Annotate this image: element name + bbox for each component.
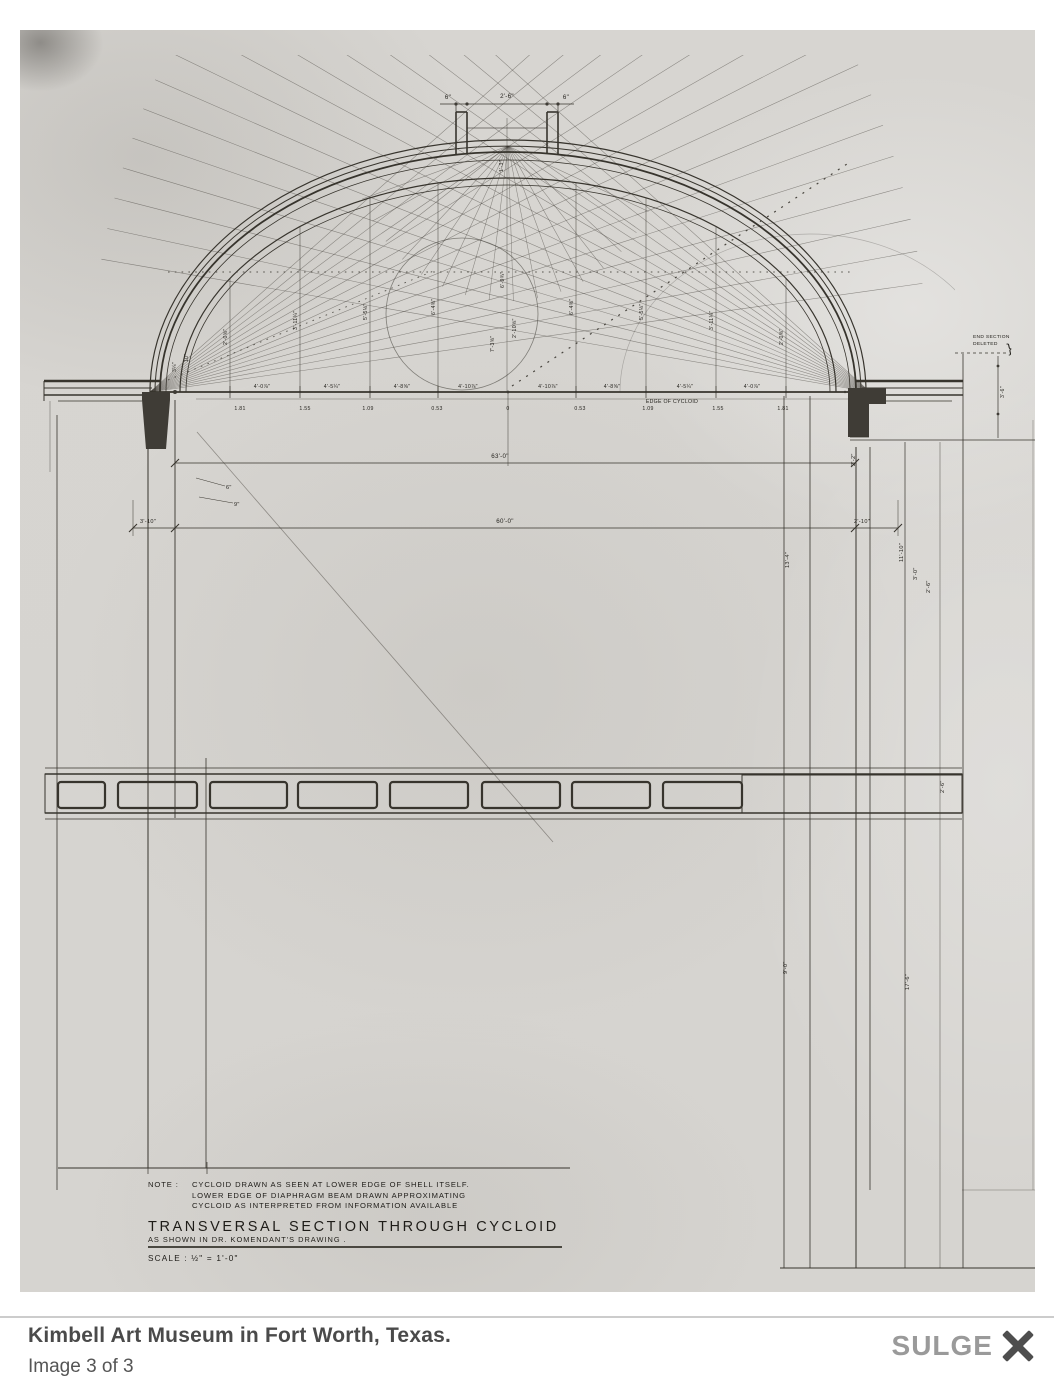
dim-label: 5'-5⅛"	[363, 304, 369, 320]
dim-label: 2'-6"	[500, 93, 514, 100]
brand-logo: SULGE	[892, 1326, 1038, 1366]
floor-band	[45, 768, 962, 819]
dim-label: 3¼"	[172, 362, 178, 372]
dim-label: 1.09	[362, 406, 373, 412]
dim-label: 6'-4⅜"	[431, 299, 437, 315]
dim-label: 4'-8⅝"	[394, 384, 410, 390]
dim-label: 6"	[563, 94, 569, 101]
dim-label: 3'-6"	[1000, 386, 1006, 398]
cycloid-shell	[150, 140, 866, 392]
dim-label: 2'-0⅝"	[779, 329, 785, 345]
bracket-glyph: }	[1006, 340, 1014, 356]
dim-label: 4'-10⅞"	[538, 384, 558, 390]
dim-label: 6'-9¾"	[500, 272, 506, 288]
brand-text: SULGE	[892, 1330, 993, 1362]
dim-label: 3'-11¼"	[293, 311, 299, 330]
dim-label: 17'-6"	[905, 974, 911, 990]
span-dimensions	[129, 459, 902, 536]
note-line: CYCLOID DRAWN AS SEEN AT LOWER EDGE OF S…	[192, 1180, 470, 1189]
note-line: LOWER EDGE OF DIAPHRAGM BEAM DRAWN APPRO…	[192, 1191, 466, 1200]
drawing-scale: SCALE : ½" = 1'-0"	[148, 1254, 239, 1263]
ghost-arc	[620, 234, 1000, 392]
dim-label: 4'-10⅞"	[458, 384, 478, 390]
dim-label: 2'-6"	[926, 580, 932, 593]
dim-label: 5'-5⅛"	[639, 304, 645, 320]
dim-label: 4'-0⅞"	[254, 384, 270, 390]
dim-label: 4'-5¼"	[677, 384, 693, 390]
dim-label: 2'-6"	[940, 780, 946, 793]
dim-label: 1.55	[299, 406, 310, 412]
note-label: NOTE :	[148, 1180, 179, 1189]
dim-label: 6"	[445, 94, 451, 101]
span-clear-label: 60'-0"	[496, 518, 514, 525]
image-counter: Image 3 of 3	[28, 1356, 134, 1378]
diagonal-construction-line	[197, 432, 553, 842]
dim-label: 1.09	[642, 406, 653, 412]
close-icon[interactable]	[998, 1326, 1038, 1366]
section-drawing: 6" 2'-6" 6" 1'-3" 2'-0⅝" 3'-11¼" 5'-5⅛" …	[20, 30, 1035, 1292]
dim-label: 4'-0⅞"	[744, 384, 760, 390]
caption-title: Kimbell Art Museum in Fort Worth, Texas.	[28, 1324, 451, 1348]
edge-of-cycloid-label: EDGE OF CYCLOID	[646, 399, 698, 405]
dim-label: 4'-8⅝"	[604, 384, 620, 390]
dim-label: 0.53	[574, 406, 585, 412]
caption-bar: Kimbell Art Museum in Fort Worth, Texas.…	[0, 1316, 1054, 1398]
end-section-note: DELETED	[973, 341, 998, 347]
dim-label: 2'-0⅝"	[223, 329, 229, 345]
left-cornice-wall	[44, 381, 170, 472]
right-cornice-wall	[848, 381, 963, 437]
drawing-title: TRANSVERSAL SECTION THROUGH CYCLOID	[148, 1219, 559, 1235]
scanned-drawing-image[interactable]: 6" 2'-6" 6" 1'-3" 2'-0⅝" 3'-11¼" 5'-5⅛" …	[20, 30, 1035, 1292]
drawing-title-note: AS SHOWN IN DR. KOMENDANT'S DRAWING .	[148, 1235, 347, 1244]
dim-label: 1.81	[234, 406, 245, 412]
end-section-note: END SECTION	[973, 334, 1010, 340]
structure-horizontals	[58, 440, 1035, 1268]
dim-label: 0	[506, 406, 509, 412]
note-line: CYCLOID AS INTERPRETED FROM INFORMATION …	[192, 1201, 458, 1210]
dim-label: 3'-0"	[913, 567, 919, 580]
dim-label: 1.55	[712, 406, 723, 412]
dim-label: 4'-5¼"	[324, 384, 340, 390]
dim-label: 6"	[226, 485, 232, 491]
dim-label: 1.81	[777, 406, 788, 412]
span-right-label: 2'-10"	[854, 519, 870, 525]
dim-label: 2'-10⅝"	[512, 318, 518, 338]
dim-label: 10"	[184, 353, 190, 362]
structure-verticals	[57, 354, 1033, 1268]
dim-label: 9"	[234, 502, 240, 508]
dim-label: 3'-11¼"	[709, 311, 715, 330]
dim-label: 9'-0"	[783, 961, 789, 974]
floor-band-solid-zone	[742, 775, 962, 813]
dim-label: 13'-4"	[785, 552, 791, 568]
drawing-text: 6" 2'-6" 6" 1'-3" 2'-0⅝" 3'-11¼" 5'-5⅛" …	[140, 93, 1014, 1263]
dim-label: 6'-4⅜"	[569, 299, 575, 315]
dim-label: 0.53	[431, 406, 442, 412]
dim-label: 1'-3"	[499, 160, 505, 172]
span-total-label: 63'-0"	[491, 453, 509, 460]
dim-label: 7'-3⅝"	[490, 336, 496, 352]
generating-circle	[386, 238, 538, 390]
dim-label: 11'-10"	[899, 543, 905, 562]
span-left-label: 3'-10"	[140, 519, 156, 525]
dim-label: 2'-2"	[851, 453, 857, 466]
